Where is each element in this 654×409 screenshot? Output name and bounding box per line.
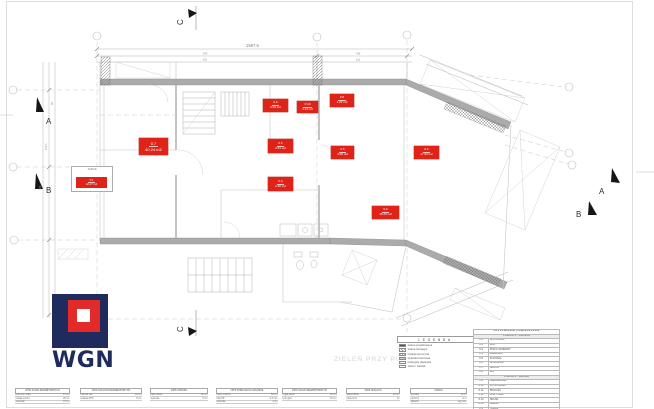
room-label: 0.740.24 m2 [139, 138, 168, 155]
room-label: 0.217.94 m2 [414, 146, 439, 159]
dim-l1: 980 [38, 185, 42, 190]
spec-row-value: 15 cm [63, 401, 69, 403]
spec-row-value: w cm [461, 394, 466, 396]
spec-row-label: stolarka [411, 401, 419, 403]
spec-table-row: styropian15 cm [15, 401, 70, 405]
schedule-table: ZESTAWIENIE POMIESZCZEŃPOZIOM -1 · PIWNI… [474, 330, 560, 409]
dim-l2: 163.5 [44, 143, 48, 150]
spec-table-row: wylewka4 cm [216, 401, 278, 405]
spec-row-label: pustak ceram. [16, 398, 30, 400]
spec-row-label: poziomy [411, 398, 420, 400]
spec-table: OPIS ŚCIAN ZEWNĘTRZNYCHtynk cem.-wap.1.5… [15, 388, 70, 404]
terrace-room-label: P.1 22.27 m2 [76, 177, 107, 188]
wgn-logo-white-square [77, 309, 90, 322]
section-letter-a-left: A [46, 117, 52, 126]
spec-row-label: płyta żelbet. [151, 394, 163, 396]
legend-item: podsypka piaskowa [397, 361, 474, 364]
room-area: 2.04 m2 [270, 106, 281, 110]
dim-l3: 90 [50, 102, 54, 105]
room-label: 0.42.48 m2 [268, 177, 293, 191]
legend-item-label: podsypka piaskowa [408, 361, 431, 364]
spec-row-label: cegła pełna [283, 394, 295, 396]
legend-title: LEGENDA [397, 336, 474, 343]
room-area: 4.08 m2 [337, 153, 348, 157]
terrace-note-label: TARAS [72, 167, 112, 171]
section-markers: C C A B A B [35, 6, 620, 336]
spec-row-value: 1.5 cm [63, 394, 70, 396]
spec-row-value: 20 cm [201, 394, 207, 396]
room-area: 2.48 m2 [275, 185, 286, 189]
section-letter-a-right: A [599, 187, 605, 196]
legend-box: LEGENDA ściana projektowanaściana istnie… [397, 336, 474, 368]
spec-row-label: styropian [16, 401, 25, 403]
room-label: 0.92.04 m2 [263, 99, 288, 112]
spec-row-value: 10 cm [271, 394, 277, 396]
section-letter-c-top: C [176, 19, 185, 25]
stairs [183, 92, 252, 292]
wgn-logo-navy-square [52, 294, 108, 348]
legend-item-label: ściana projektowana [408, 344, 433, 347]
legend-item: ściana istniejąca [397, 348, 474, 351]
spec-row-value: 10 cm [393, 394, 399, 396]
wgn-logo-red-square [68, 300, 100, 332]
spec-row-label: wylewka [151, 398, 160, 400]
legend-swatch-outline [399, 365, 406, 368]
room-area: 40.24 m2 [145, 147, 162, 152]
spec-row-value: 5 cm [202, 398, 207, 400]
spec-row-label: tynk cem.-wap. [16, 394, 31, 396]
spec-row-label: izolacja XPS [81, 398, 94, 400]
section-letter-b-left: B [46, 186, 51, 195]
spec-table-row: papa term.2x [346, 397, 400, 401]
wgn-logo-text: WGN [52, 350, 114, 372]
legend-item: zieleń / trawnik [397, 365, 474, 368]
legend-swatch-dots [399, 361, 406, 364]
spec-row-label: tynk gips. [283, 398, 293, 400]
spec-row-value: w m [462, 398, 466, 400]
terrace-note-box: TARAS P.1 22.27 m2 [71, 166, 113, 192]
spec-row-value: 24 cm [135, 394, 141, 396]
drawing-sheet: C C A B A B 1587.5 540 811 436 611 980 1… [0, 0, 654, 409]
section-letter-c-bottom: C [176, 326, 185, 332]
spec-table-row: stolarkawg zest. [410, 401, 467, 405]
legend-swatch-gray [399, 357, 406, 360]
room-label: 0.101.14 m2 [297, 101, 318, 113]
dim-t3: 436 [356, 52, 361, 56]
spec-row-value: 2x [397, 398, 399, 400]
room-area: 4.61 m2 [275, 147, 286, 151]
dim-t2: 811 [203, 58, 208, 62]
legend-swatch-solid [399, 344, 406, 347]
spec-row-value: 12 cm [330, 394, 336, 396]
room-area: 15.29 m2 [379, 213, 392, 217]
spec-table-row: izolacja XPS8 cm [80, 397, 142, 401]
spec-row-value: wg zest. [458, 401, 466, 403]
spec-row-value: 1.5 cm [330, 398, 337, 400]
dim-t4: 611 [356, 58, 361, 62]
spec-table: OPIS ŚCIAN WEWNĘTRZNYCHcegła pełna12 cmt… [282, 388, 337, 401]
legend-swatch-hatch [399, 348, 406, 351]
spec-row-label: wełna miner. [347, 394, 360, 396]
spec-table: OPIS STROPUpłyta żelbet.20 cmwylewka5 cm [150, 388, 208, 401]
spec-row-label: beton C12/15 [217, 394, 231, 396]
spec-table-row: wylewka5 cm [150, 397, 208, 401]
spec-row-label: wymiary [411, 394, 419, 396]
spec-table: OPIS ŚCIAN FUNDAMENTOWYCHbloczek bet.24 … [80, 388, 142, 401]
legend-item: izolacja termiczna [397, 353, 474, 356]
legend-item-label: wylewka betonowa [408, 357, 431, 360]
spec-row-value: 0.2 mm [270, 398, 278, 400]
legend-item-label: zieleń / trawnik [408, 365, 426, 368]
spec-row-label: folia PE [217, 398, 225, 400]
room-area: 1.14 m2 [302, 108, 313, 112]
spec-row-value: 4 cm [272, 401, 277, 403]
spec-table: OPIS PODŁOGI NA GRUNCIEbeton C12/1510 cm… [216, 388, 278, 404]
dim-total: 1587.5 [246, 43, 259, 48]
room-label: 0.54.08 m2 [331, 146, 354, 159]
room-area: 17.94 m2 [420, 153, 433, 157]
room-schedule: ZESTAWIENIE POMIESZCZEŃPOZIOM -1 · PIWNI… [473, 329, 560, 409]
spec-row-value: 25 cm [63, 398, 69, 400]
spec-row-label: papa term. [347, 398, 358, 400]
legend-item-label: izolacja termiczna [408, 353, 429, 356]
spec-table: UWAGIwymiaryw cmpoziomyw mstolarkawg zes… [410, 388, 467, 404]
spec-row-label: bloczek bet. [81, 394, 93, 396]
legend-item: ściana projektowana [397, 344, 474, 347]
spec-table: OPIS IZOLACJIwełna miner.10 cmpapa term.… [346, 388, 400, 401]
interior-walls [100, 85, 406, 312]
legend-item-label: ściana istniejąca [408, 348, 428, 351]
dim-t1: 540 [203, 52, 208, 56]
room-label: 0.64.61 m2 [268, 139, 293, 153]
legend-items: ściana projektowanaściana istniejącaizol… [397, 344, 474, 368]
spec-row-label: wylewka [217, 401, 226, 403]
window-hatch [443, 102, 506, 286]
room-label: 0.82.02 m2 [330, 94, 354, 107]
walls [100, 56, 511, 289]
room-area: 2.02 m2 [337, 101, 348, 105]
legend-item: wylewka betonowa [397, 357, 474, 360]
terrace-room-area: 22.27 m2 [86, 183, 97, 186]
wgn-logo: WGN [52, 294, 114, 372]
section-letter-b-right: B [576, 210, 581, 219]
spec-row-value: 8 cm [136, 398, 141, 400]
spec-table-row: tynk gips.1.5 cm [282, 397, 337, 401]
legend-swatch-cross [399, 353, 406, 356]
room-label: 0.315.29 m2 [372, 206, 399, 219]
